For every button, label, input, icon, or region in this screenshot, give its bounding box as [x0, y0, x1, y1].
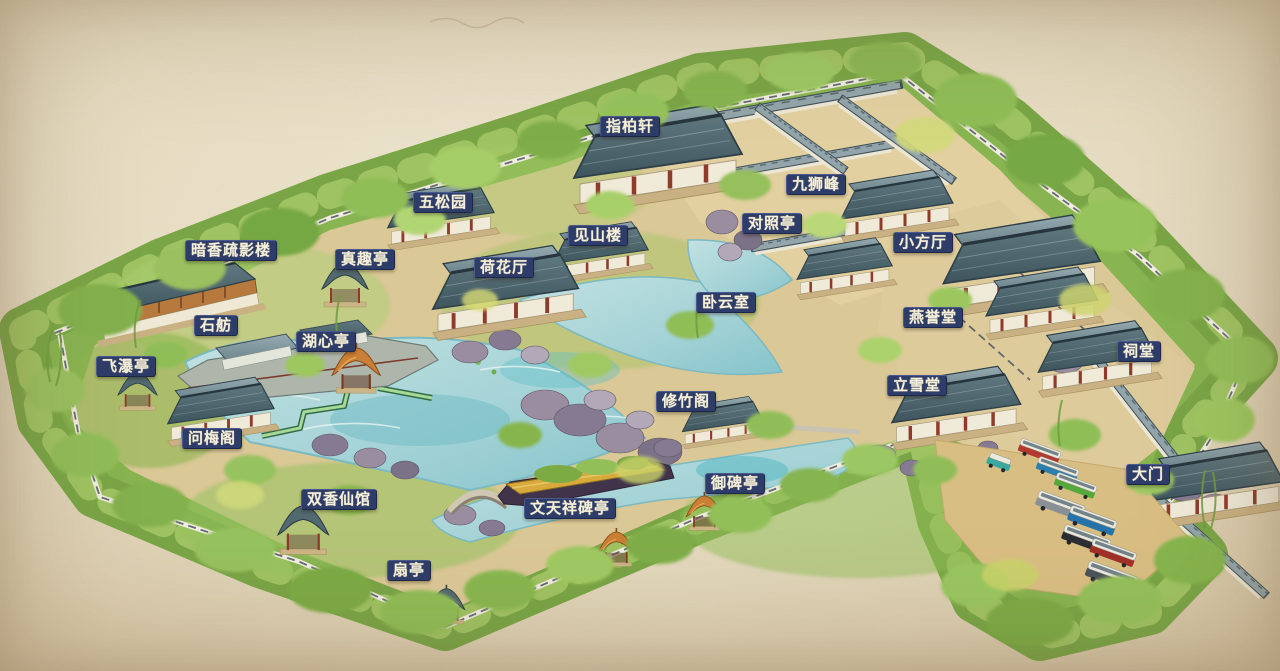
poi-label-zhenquting[interactable]: 真趣亭	[335, 249, 395, 270]
poi-label-shuangxiangxianguan[interactable]: 双香仙馆	[301, 489, 377, 510]
garden-map: 指柏轩五松园九狮峰对照亭见山楼小方厅暗香疏影楼真趣亭荷花厅卧云室燕誉堂石舫湖心亭…	[0, 0, 1280, 671]
poi-label-wentianxiangbeiting[interactable]: 文天祥碑亭	[524, 498, 616, 519]
poi-label-duizhaoting[interactable]: 对照亭	[742, 213, 802, 234]
poi-label-xiaofangting[interactable]: 小方厅	[893, 232, 953, 253]
poi-label-shifang[interactable]: 石舫	[194, 315, 238, 336]
poi-label-jianshanlou[interactable]: 见山楼	[568, 225, 628, 246]
poi-label-hehuating[interactable]: 荷花厅	[474, 257, 534, 278]
poi-label-yubeiting[interactable]: 御碑亭	[705, 473, 765, 494]
poi-label-layer: 指柏轩五松园九狮峰对照亭见山楼小方厅暗香疏影楼真趣亭荷花厅卧云室燕誉堂石舫湖心亭…	[0, 0, 1280, 671]
poi-label-citang[interactable]: 祠堂	[1117, 341, 1161, 362]
poi-label-shanting[interactable]: 扇亭	[387, 560, 431, 581]
poi-label-huxinting[interactable]: 湖心亭	[296, 331, 356, 352]
poi-label-zhibaixuan[interactable]: 指柏轩	[600, 116, 660, 137]
poi-label-yanyutang[interactable]: 燕誉堂	[903, 307, 963, 328]
poi-label-wusongyuan[interactable]: 五松园	[413, 192, 473, 213]
poi-label-lixuetang[interactable]: 立雪堂	[887, 375, 947, 396]
poi-label-feiputing[interactable]: 飞瀑亭	[96, 356, 156, 377]
poi-label-anxiangshuyinglou[interactable]: 暗香疏影楼	[185, 240, 277, 261]
poi-label-woyunshi[interactable]: 卧云室	[696, 292, 756, 313]
poi-label-damen[interactable]: 大门	[1126, 464, 1170, 485]
poi-label-xiuzhuge[interactable]: 修竹阁	[656, 391, 716, 412]
poi-label-jiushifeng[interactable]: 九狮峰	[786, 174, 846, 195]
poi-label-wenmeige[interactable]: 问梅阁	[182, 428, 242, 449]
